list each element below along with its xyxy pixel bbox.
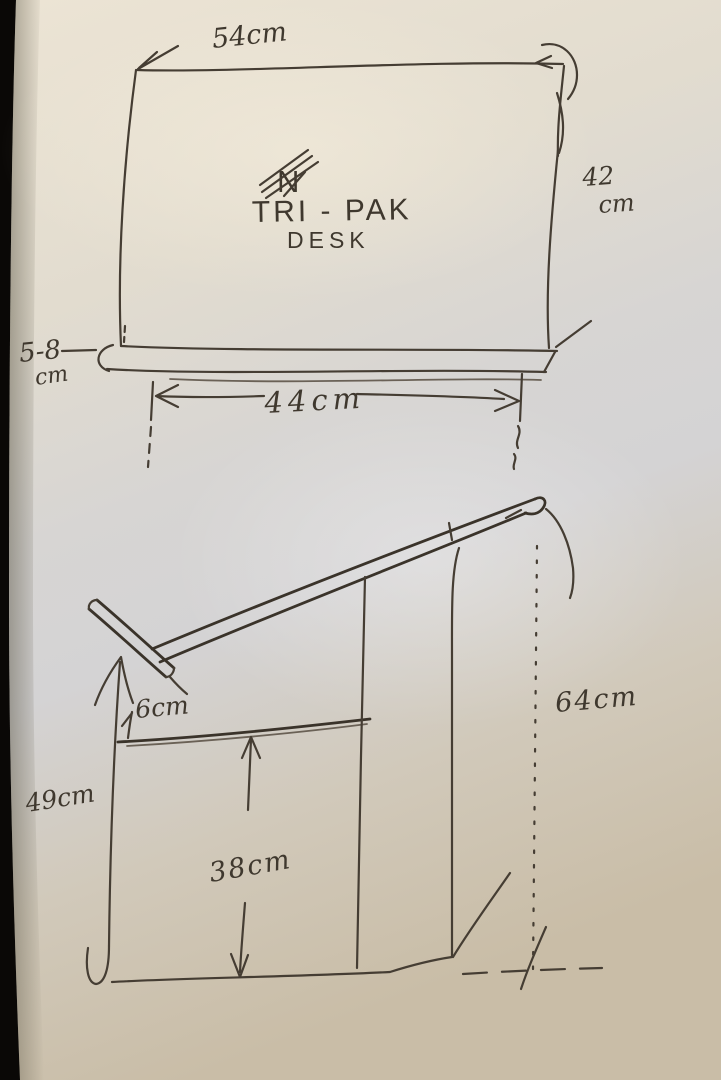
lip-leader-dash bbox=[62, 350, 96, 351]
depth-unit-label: cm bbox=[597, 189, 635, 219]
lip-height-label: 6cm bbox=[134, 690, 190, 724]
depth-value-label: 42 bbox=[580, 161, 615, 192]
inner-width-label: 44cm bbox=[263, 381, 366, 420]
sketch-canvas: 54cm 42 cm N TRI - PAK DESK 5-8 cm 44cm bbox=[0, 0, 721, 1080]
lip-unit-label: cm bbox=[33, 362, 69, 391]
title-line2: DESK bbox=[287, 227, 370, 253]
title-line1: TRI - PAK bbox=[252, 193, 412, 229]
paper-sheen bbox=[170, 390, 690, 730]
paper-sheen-top bbox=[0, 0, 600, 300]
sketch-photo: 54cm 42 cm N TRI - PAK DESK 5-8 cm 44cm bbox=[0, 0, 721, 1080]
